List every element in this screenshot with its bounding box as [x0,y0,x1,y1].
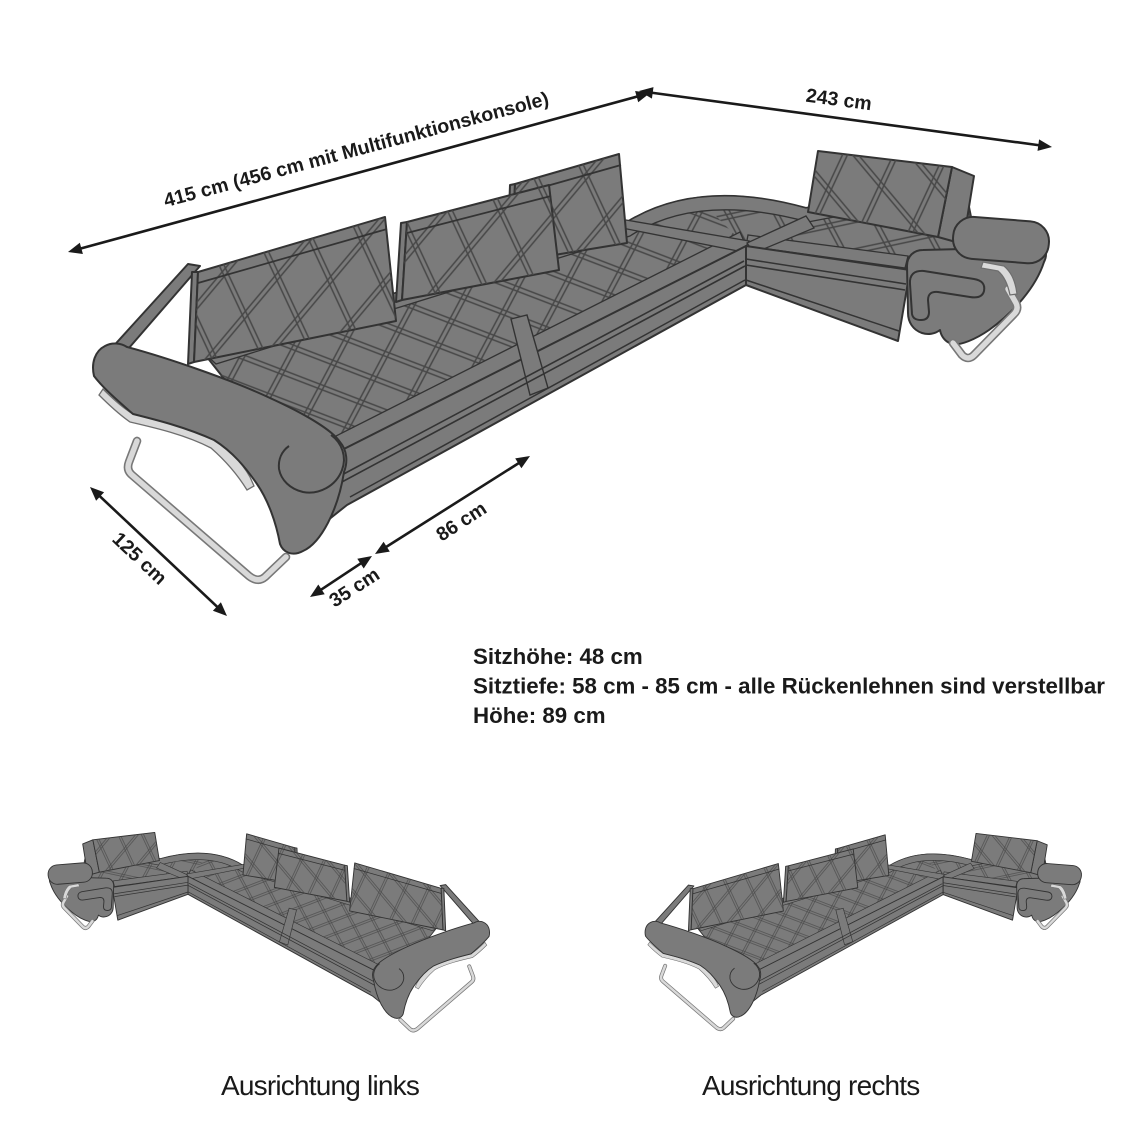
svg-text:35 cm: 35 cm [325,564,383,613]
svg-text:Sitzhöhe: 48 cm: Sitzhöhe: 48 cm [473,644,643,669]
svg-text:Ausrichtung rechts: Ausrichtung rechts [702,1070,920,1101]
svg-text:243 cm: 243 cm [805,85,873,116]
svg-text:86 cm: 86 cm [432,498,490,547]
svg-text:Höhe: 89 cm: Höhe: 89 cm [473,703,606,728]
svg-text:Ausrichtung links: Ausrichtung links [221,1070,419,1101]
svg-text:125 cm: 125 cm [108,528,171,589]
svg-text:415 cm (456 cm mit Multifunkti: 415 cm (456 cm mit Multifunktionskonsole… [161,88,551,212]
svg-text:Sitztiefe: 58 cm - 85 cm - all: Sitztiefe: 58 cm - 85 cm - alle Rückenle… [473,674,1105,699]
